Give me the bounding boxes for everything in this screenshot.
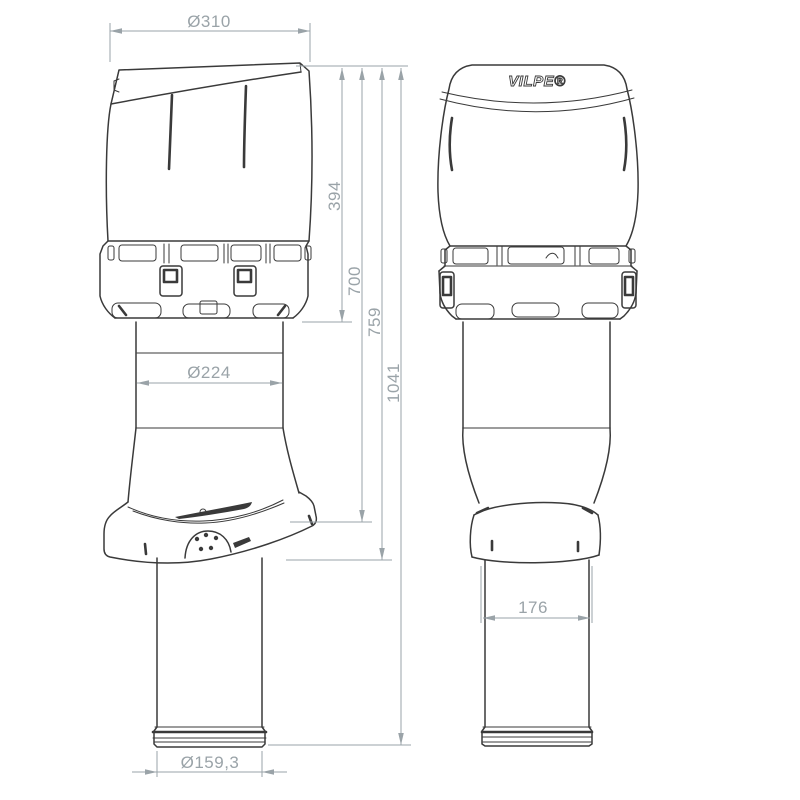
roof-flashing [104,492,316,563]
dimension-upper-pipe-diameter: Ø224 [137,363,282,386]
snap-clip-right-latch [238,270,251,282]
dimension-height-to-flashing-top: 700 [290,68,372,522]
front-upper-pipe [463,322,611,503]
pipe-end-rings [153,727,266,747]
dimension-outlet-diameter: Ø159,3 [132,751,287,777]
front-vent-grille [439,246,637,319]
total-height-label: 1041 [384,363,403,403]
outlet-diameter-label: Ø159,3 [181,753,240,772]
snap-clip-left-latch [164,270,177,282]
upper-pipe [128,322,299,502]
dimensions: Ø310 394 700 [110,12,592,777]
hood-cap [106,63,312,241]
dimension-lower-pipe-width: 176 [481,566,592,623]
front-clip-left-latch [443,277,451,295]
technical-drawing-canvas: VILPE® [0,0,800,800]
flashing-molded-mark [233,537,251,548]
dimension-height-chain: 394 700 759 1041 [268,66,411,745]
side-view [100,63,316,747]
front-lower-pipe [482,560,592,746]
front-pipe-end-rings [482,727,592,746]
grille-detail [546,253,558,258]
dimension-total-height: 1041 [268,68,411,745]
vent-grille [100,241,311,318]
front-hood-cap: VILPE® [438,65,638,246]
drawing-svg: VILPE® [0,0,800,800]
front-flashing-collar [470,503,600,563]
hood-groove-left [169,95,172,169]
height-to-flashing-bottom-label: 759 [365,307,384,337]
front-clip-right-latch [625,277,633,295]
height-to-flashing-top-label: 700 [345,266,364,296]
front-view: VILPE® [438,65,638,746]
dimension-height-to-flashing-bottom: 759 [286,68,392,560]
vilpe-logo: VILPE® [508,73,566,90]
hood-groove-right [244,86,246,167]
lower-pipe [153,558,266,747]
hood-height-label: 394 [325,181,344,211]
hood-diameter-label: Ø310 [187,12,231,31]
dimension-hood-diameter: Ø310 [110,12,310,62]
upper-pipe-diameter-label: Ø224 [187,363,231,382]
lower-pipe-width-label: 176 [518,598,548,617]
